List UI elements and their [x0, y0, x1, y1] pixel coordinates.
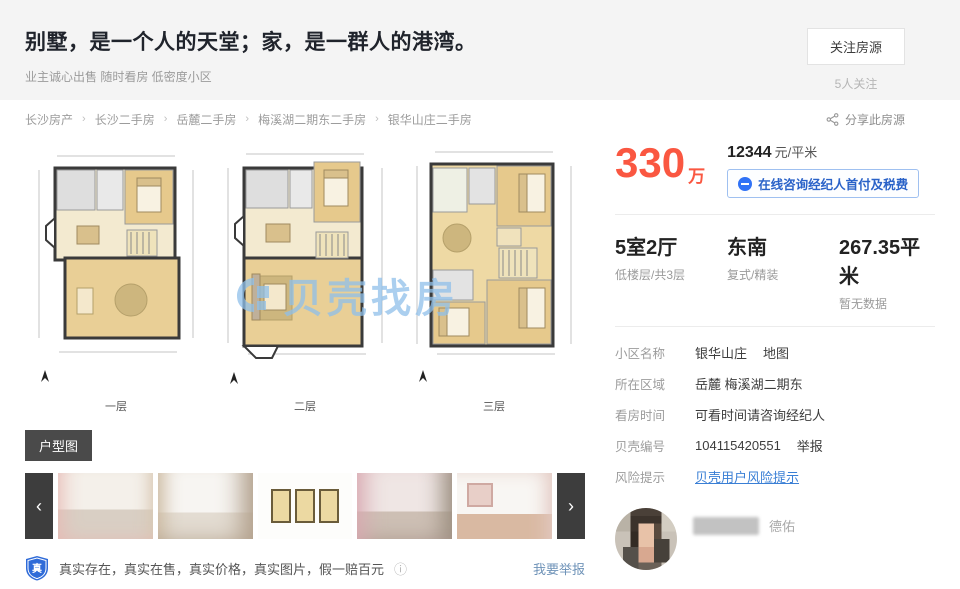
- floorplan-tag[interactable]: 户型图: [25, 430, 92, 461]
- spec-main: 东南: [727, 231, 839, 260]
- map-link[interactable]: 地图: [763, 343, 789, 362]
- spec-main: 267.35平米: [839, 231, 935, 289]
- fact-row-listing-id: 贝壳编号 104115420551 举报: [615, 436, 935, 455]
- floor-label: 一层: [25, 398, 207, 414]
- svg-text:真: 真: [32, 562, 42, 575]
- authenticity-shield-icon: 真: [25, 555, 49, 581]
- floorplan-1-drawing: [25, 138, 207, 404]
- photo-thumbnail[interactable]: [457, 473, 552, 539]
- fact-list: 小区名称 银华山庄 地图 所在区域 岳麓 梅溪湖二期东 看房时间 可看时间请咨询…: [615, 326, 935, 486]
- floorplan-3-drawing: [403, 138, 585, 404]
- follow-area: 关注房源 5人关注: [807, 28, 905, 92]
- spec-main: 5室2厅: [615, 231, 727, 260]
- share-icon: [826, 113, 839, 126]
- floor-label: 二层: [214, 398, 396, 414]
- next-arrow-button[interactable]: ›: [557, 473, 585, 539]
- breadcrumb-item[interactable]: 梅溪湖二期东二手房: [258, 111, 366, 128]
- spec-sub: 暂无数据: [839, 295, 935, 312]
- floorplan-2-drawing: [214, 138, 396, 404]
- spec-sub: 复式/精装: [727, 266, 839, 283]
- authenticity-bar: 真 真实存在，真实在售，真实价格，真实图片，假一赔百元 ⓘ 我要举报: [25, 551, 585, 585]
- prev-arrow-button[interactable]: ‹: [25, 473, 53, 539]
- breadcrumb-separator: ›: [245, 113, 249, 125]
- breadcrumb-item[interactable]: 长沙二手房: [95, 111, 155, 128]
- breadcrumb-item[interactable]: 长沙房产: [25, 111, 73, 128]
- breadcrumb-separator: ›: [375, 113, 379, 125]
- floor-label: 三层: [403, 398, 585, 414]
- photo-thumbnail[interactable]: [58, 473, 153, 539]
- consult-agent-button[interactable]: 在线咨询经纪人首付及税费: [727, 169, 919, 198]
- breadcrumb-separator: ›: [164, 113, 168, 125]
- agent-identity: 德佑: [693, 516, 795, 535]
- followers-count: 5人关注: [807, 75, 905, 92]
- breadcrumb-separator: ›: [82, 113, 86, 125]
- floorplan-2: 二层: [214, 138, 396, 426]
- total-price: 330: [615, 142, 685, 184]
- fact-row-community: 小区名称 银华山庄 地图: [615, 343, 935, 362]
- agent-card: 德佑: [615, 508, 935, 570]
- unit-price: 12344元/平米: [727, 142, 919, 162]
- share-listing-link[interactable]: 分享此房源: [826, 111, 905, 128]
- agent-avatar[interactable]: [615, 508, 677, 570]
- follow-button[interactable]: 关注房源: [807, 28, 905, 65]
- consult-label: 在线咨询经纪人首付及税费: [758, 174, 908, 193]
- unit-price-suffix: 元/平米: [775, 145, 818, 160]
- agent-name-redacted: [693, 517, 759, 535]
- price-block: 330 万 12344元/平米 在线咨询经纪人首付及税费: [615, 142, 935, 198]
- details-column: 330 万 12344元/平米 在线咨询经纪人首付及税费 5室2厅 低楼层/共3…: [615, 138, 935, 589]
- floorplan-viewer[interactable]: 一层: [25, 138, 585, 426]
- total-price-unit: 万: [688, 162, 705, 187]
- chat-dot-icon: [738, 177, 752, 191]
- gallery-column: 一层: [25, 138, 585, 589]
- photo-thumbnail[interactable]: [357, 473, 452, 539]
- report-link[interactable]: 我要举报: [533, 559, 585, 578]
- spec-layout: 5室2厅 低楼层/共3层: [615, 231, 727, 312]
- floorplan-1: 一层: [25, 138, 207, 426]
- fact-row-risk: 风险提示 贝壳用户风险提示: [615, 467, 935, 486]
- spec-sub: 低楼层/共3层: [615, 266, 727, 283]
- agent-brand: 德佑: [769, 516, 795, 535]
- share-label: 分享此房源: [845, 111, 905, 128]
- spec-summary: 5室2厅 低楼层/共3层 东南 复式/精装 267.35平米 暂无数据: [615, 214, 935, 312]
- breadcrumb-item[interactable]: 银华山庄二手房: [388, 111, 472, 128]
- hero-banner: 别墅，是一个人的天堂；家，是一群人的港湾。 业主诚心出售 随时看房 低密度小区 …: [0, 0, 960, 100]
- floorplan-thumbnail[interactable]: [258, 473, 353, 539]
- info-icon[interactable]: ⓘ: [394, 559, 407, 578]
- fact-row-district: 所在区域 岳麓 梅溪湖二期东: [615, 374, 935, 393]
- page-subtitle: 业主诚心出售 随时看房 低密度小区: [25, 68, 905, 85]
- thumbnail-strip: ‹ ›: [25, 473, 585, 539]
- unit-price-value: 12344: [727, 144, 772, 161]
- spec-area: 267.35平米 暂无数据: [839, 231, 935, 312]
- floorplan-3: 三层: [403, 138, 585, 426]
- page-title: 别墅，是一个人的天堂；家，是一群人的港湾。: [25, 26, 905, 56]
- spec-orientation: 东南 复式/精装: [727, 231, 839, 312]
- breadcrumb-item[interactable]: 岳麓二手房: [176, 111, 236, 128]
- pixelated-avatar-image: [615, 508, 677, 570]
- main-content: 一层: [0, 138, 960, 589]
- fact-row-viewing-time: 看房时间 可看时间请咨询经纪人: [615, 405, 935, 424]
- breadcrumb: 长沙房产 › 长沙二手房 › 岳麓二手房 › 梅溪湖二期东二手房 › 银华山庄二…: [0, 100, 960, 138]
- authenticity-text: 真实存在，真实在售，真实价格，真实图片，假一赔百元: [59, 559, 384, 578]
- photo-thumbnail[interactable]: [158, 473, 253, 539]
- report-listing-link[interactable]: 举报: [797, 436, 823, 455]
- risk-notice-link[interactable]: 贝壳用户风险提示: [695, 467, 799, 486]
